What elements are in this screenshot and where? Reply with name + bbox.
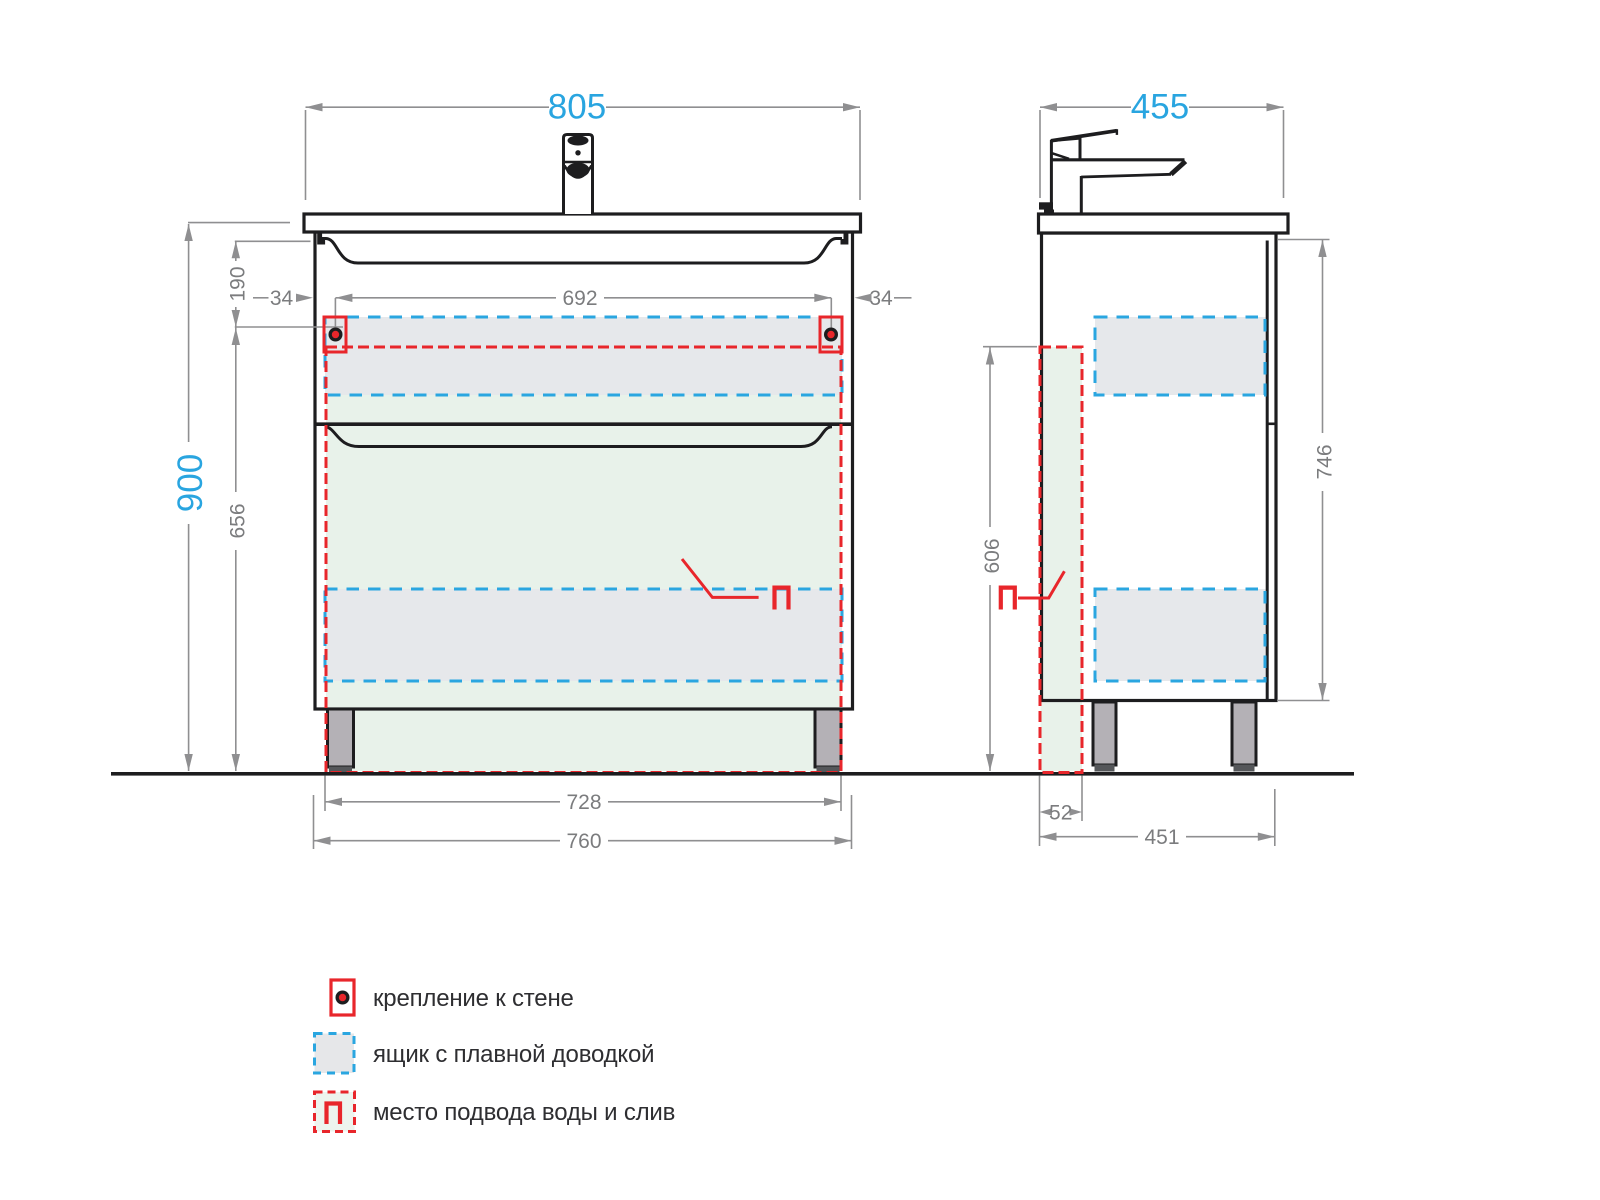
svg-text:ящик с плавной доводкой: ящик с плавной доводкой	[373, 1041, 654, 1068]
svg-text:900: 900	[171, 454, 210, 512]
svg-text:692: 692	[562, 287, 597, 310]
svg-text:746: 746	[1314, 444, 1337, 479]
svg-text:728: 728	[566, 791, 601, 814]
svg-text:крепление к стене: крепление к стене	[373, 985, 574, 1012]
svg-text:34: 34	[869, 287, 893, 310]
svg-text:451: 451	[1144, 826, 1179, 849]
svg-text:606: 606	[981, 538, 1004, 573]
svg-text:760: 760	[566, 830, 601, 853]
svg-text:455: 455	[1131, 88, 1189, 127]
svg-text:656: 656	[227, 503, 250, 538]
svg-text:190: 190	[227, 266, 250, 301]
svg-text:место подвода воды и слив: место подвода воды и слив	[373, 1099, 675, 1126]
svg-text:34: 34	[270, 287, 294, 310]
svg-text:52: 52	[1049, 802, 1072, 825]
svg-text:805: 805	[548, 88, 606, 127]
